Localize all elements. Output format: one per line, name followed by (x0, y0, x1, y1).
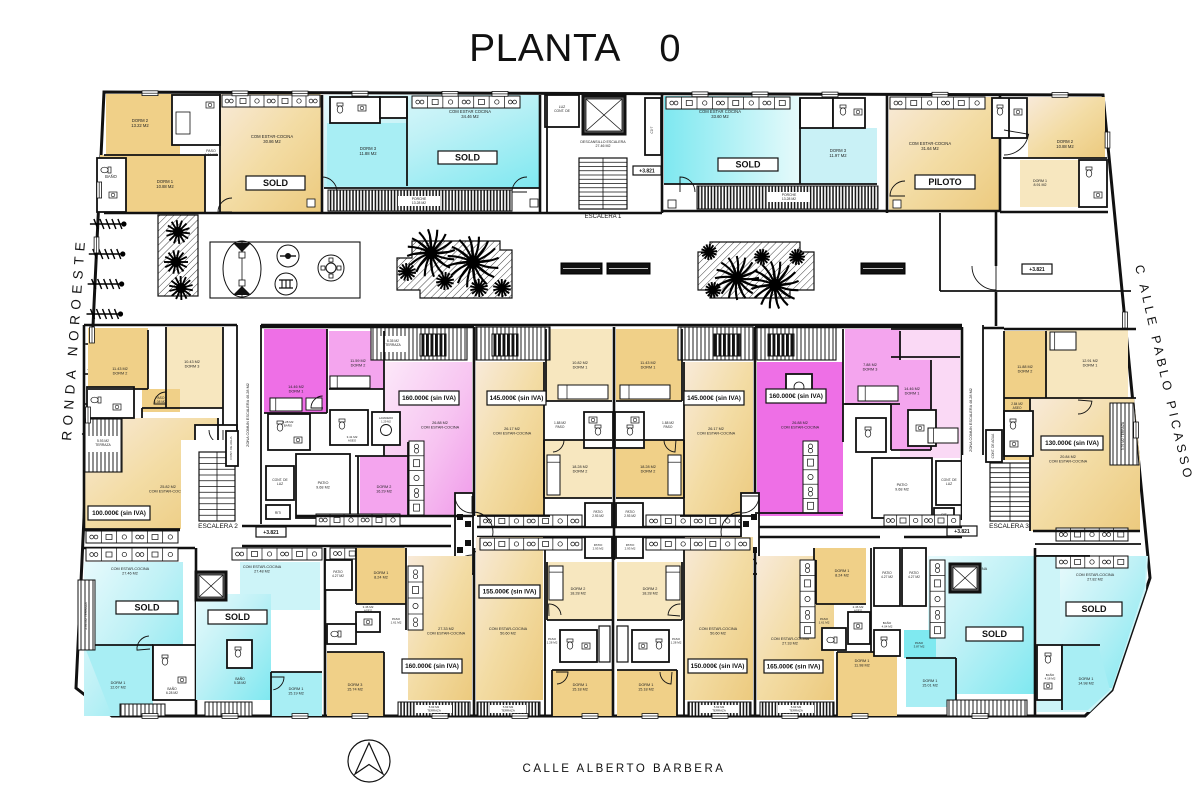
svg-text:4.28 M2BAÑO: 4.28 M2BAÑO (283, 420, 294, 428)
svg-text:12.91 M2DORM 1: 12.91 M2DORM 1 (1082, 359, 1098, 367)
svg-text:BAÑO6.28 M2: BAÑO6.28 M2 (166, 686, 178, 695)
svg-text:ZONA COMUN ESCALERA 48.28 M2: ZONA COMUN ESCALERA 48.28 M2 (969, 388, 973, 452)
svg-text:5.93 M2TERRAZA: 5.93 M2TERRAZA (501, 705, 515, 713)
svg-text:SOLD: SOLD (134, 603, 160, 613)
svg-text:SOLD: SOLD (225, 612, 251, 622)
svg-text:14.46 M2DORM 1: 14.46 M2DORM 1 (904, 387, 920, 395)
svg-text:ZONA COMUN ESCALERA 46.28 M2: ZONA COMUN ESCALERA 46.28 M2 (246, 383, 250, 447)
svg-text:PORCHE13.28 M2: PORCHE13.28 M2 (782, 193, 797, 201)
svg-text:PATIO9.68 M2: PATIO9.68 M2 (316, 481, 330, 489)
svg-text:PILOTO: PILOTO (928, 177, 961, 187)
svg-text:PATIO4.27 M2: PATIO4.27 M2 (332, 570, 344, 578)
svg-text:PASO1.10 M2: PASO1.10 M2 (205, 149, 218, 157)
svg-text:DORM 18.91 M2: DORM 18.91 M2 (1033, 179, 1047, 187)
svg-text:SOLD: SOLD (982, 629, 1008, 639)
svg-text:11.43 M2DORM 1: 11.43 M2DORM 1 (640, 361, 656, 369)
svg-text:DORM 216.29 M2: DORM 216.29 M2 (376, 485, 392, 493)
svg-text:DORM 112.67 M2: DORM 112.67 M2 (110, 681, 126, 689)
svg-text:2.94 M2 TERRAZA: 2.94 M2 TERRAZA (84, 602, 88, 630)
svg-text:+3.821: +3.821 (639, 168, 655, 174)
svg-text:0: 0 (659, 28, 680, 70)
svg-text:5.93 M2TERRAZA: 5.93 M2TERRAZA (712, 705, 726, 713)
svg-text:165.000€ (sin IVA): 165.000€ (sin IVA) (767, 664, 821, 671)
svg-text:5.93 M2TERRAZA: 5.93 M2TERRAZA (427, 705, 441, 713)
svg-text:2.46 M2ASEO: 2.46 M2ASEO (853, 605, 864, 613)
svg-text:CONT. DE AGUA: CONT. DE AGUA (229, 436, 233, 459)
svg-text:DORM 110.88 M2: DORM 110.88 M2 (156, 179, 174, 189)
svg-text:DORM 18.24 M2: DORM 18.24 M2 (835, 569, 850, 577)
svg-text:SOLD: SOLD (735, 160, 761, 170)
svg-text:+3.821: +3.821 (1029, 267, 1045, 273)
svg-text:DORM 115.19 M2: DORM 115.19 M2 (288, 687, 304, 695)
svg-text:5.76 M2 TERRAZA: 5.76 M2 TERRAZA (1121, 421, 1125, 450)
svg-text:BAÑO4.04 M2: BAÑO4.04 M2 (882, 620, 893, 629)
svg-text:DORM 311.97 M2: DORM 311.97 M2 (829, 148, 847, 158)
svg-text:DORM 218.28 M2: DORM 218.28 M2 (642, 587, 658, 595)
svg-text:5.93 M2TERRAZA: 5.93 M2TERRAZA (789, 705, 803, 713)
svg-text:DORM 114.98 M2: DORM 114.98 M2 (1078, 677, 1094, 685)
svg-text:PATIO2.93 M2: PATIO2.93 M2 (592, 510, 604, 518)
svg-text:3.41 M2ASEO: 3.41 M2ASEO (347, 435, 358, 443)
svg-text:PATIO2.93 M2: PATIO2.93 M2 (625, 543, 636, 551)
svg-text:SOLD: SOLD (1081, 604, 1107, 614)
svg-text:PATIO9.68 M2: PATIO9.68 M2 (895, 483, 909, 491)
svg-text:11.43 M2DORM 2: 11.43 M2DORM 2 (112, 367, 128, 375)
svg-text:DORM 115.01 M2: DORM 115.01 M2 (922, 679, 938, 687)
svg-text:DORM 18.24 M2: DORM 18.24 M2 (374, 571, 389, 579)
svg-text:CALLE ALBERTO BARBERA: CALLE ALBERTO BARBERA (523, 763, 726, 775)
svg-text:155.000€ (sin IVA): 155.000€ (sin IVA) (483, 589, 537, 596)
svg-text:DORM 111.98 M2: DORM 111.98 M2 (854, 659, 870, 667)
svg-text:PATIO2.93 M2: PATIO2.93 M2 (624, 510, 636, 518)
svg-text:DORM 115.18 M2: DORM 115.18 M2 (638, 683, 654, 691)
svg-text:10.43 M2DORM 3: 10.43 M2DORM 3 (184, 360, 200, 368)
svg-text:ESCALERA 3: ESCALERA 3 (989, 523, 1029, 530)
svg-text:145.000€ (sin IVA): 145.000€ (sin IVA) (490, 395, 544, 402)
svg-text:DORM 218.28 M2: DORM 218.28 M2 (570, 587, 586, 595)
svg-text:RITI: RITI (275, 511, 281, 515)
svg-text:BAÑO4.18 M2: BAÑO4.18 M2 (1045, 672, 1056, 681)
svg-text:ESCALERA 2: ESCALERA 2 (198, 523, 238, 530)
svg-text:2.84 M2ASEO: 2.84 M2ASEO (1011, 402, 1023, 410)
svg-text:PATIO4.27 M2: PATIO4.27 M2 (908, 571, 920, 579)
svg-text:CONT. DE AGUA: CONT. DE AGUA (991, 433, 995, 458)
svg-text:SOLD: SOLD (455, 153, 481, 163)
svg-text:130.000€ (sin IVA): 130.000€ (sin IVA) (1045, 440, 1099, 447)
svg-text:PLANTA: PLANTA (469, 27, 621, 70)
svg-text:18.28 M2DORM 2: 18.28 M2DORM 2 (572, 465, 588, 473)
svg-text:160.000€ (sin IVA): 160.000€ (sin IVA) (402, 395, 456, 402)
svg-text:DORM 115.18 M2: DORM 115.18 M2 (572, 683, 588, 691)
svg-text:14.46 M2DORM 1: 14.46 M2DORM 1 (288, 385, 304, 393)
svg-text:BAÑO: BAÑO (105, 174, 118, 179)
svg-text:DORM 315.74 M2: DORM 315.74 M2 (347, 683, 363, 691)
svg-text:100.000€ (sin IVA): 100.000€ (sin IVA) (92, 510, 146, 517)
svg-text:C0·7: C0·7 (650, 126, 654, 133)
svg-text:3.46 M2ASEO: 3.46 M2ASEO (363, 605, 374, 613)
svg-text:BAÑO5.38 M2: BAÑO5.38 M2 (234, 676, 246, 685)
svg-text:11.59 M2DORM 2: 11.59 M2DORM 2 (350, 359, 366, 367)
svg-text:11.88 M2DORM 2: 11.88 M2DORM 2 (1017, 365, 1033, 373)
svg-text:7.88 M2DORM 3: 7.88 M2DORM 3 (863, 363, 878, 371)
svg-text:PORCHE13.28 M2: PORCHE13.28 M2 (412, 197, 427, 205)
svg-text:145.000€ (sin IVA): 145.000€ (sin IVA) (687, 395, 741, 402)
svg-text:SOLD: SOLD (263, 178, 289, 188)
svg-text:+3.821: +3.821 (954, 529, 970, 535)
svg-text:ESCALERA 1: ESCALERA 1 (585, 214, 622, 220)
svg-text:DORM 210.88 M2: DORM 210.88 M2 (1056, 139, 1074, 149)
svg-text:1.88 M2PASO: 1.88 M2PASO (662, 421, 674, 429)
svg-text:PATIO4.27 M2: PATIO4.27 M2 (881, 571, 893, 579)
svg-text:PATIO2.93 M2: PATIO2.93 M2 (593, 543, 604, 551)
svg-text:10.82 M2DORM 1: 10.82 M2DORM 1 (572, 361, 588, 369)
svg-text:DORM 311.88 M2: DORM 311.88 M2 (359, 146, 377, 156)
svg-text:150.000€ (sin IVA): 150.000€ (sin IVA) (691, 663, 745, 670)
svg-text:160.000€ (sin IVA): 160.000€ (sin IVA) (405, 663, 459, 670)
svg-text:18.28 M2DORM 2: 18.28 M2DORM 2 (640, 465, 656, 473)
svg-text:DORM 213.22 M2: DORM 213.22 M2 (131, 118, 149, 128)
svg-text:160.000€ (sin IVA): 160.000€ (sin IVA) (769, 393, 823, 400)
svg-text:+3.821: +3.821 (263, 530, 279, 536)
svg-text:1.88 M2PASO: 1.88 M2PASO (554, 421, 566, 429)
